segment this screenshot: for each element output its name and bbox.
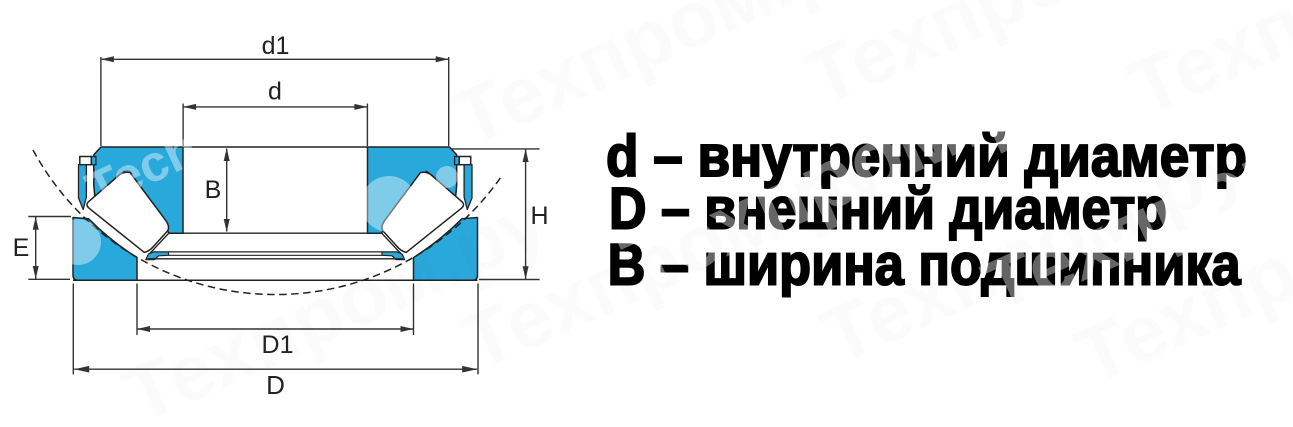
- svg-text:Техпром.ру: Техпром.ру: [1116, 0, 1293, 134]
- svg-text:B: B: [205, 176, 222, 204]
- svg-text:d1: d1: [262, 32, 290, 60]
- svg-text:d: d: [268, 78, 282, 106]
- svg-text:E: E: [13, 234, 30, 262]
